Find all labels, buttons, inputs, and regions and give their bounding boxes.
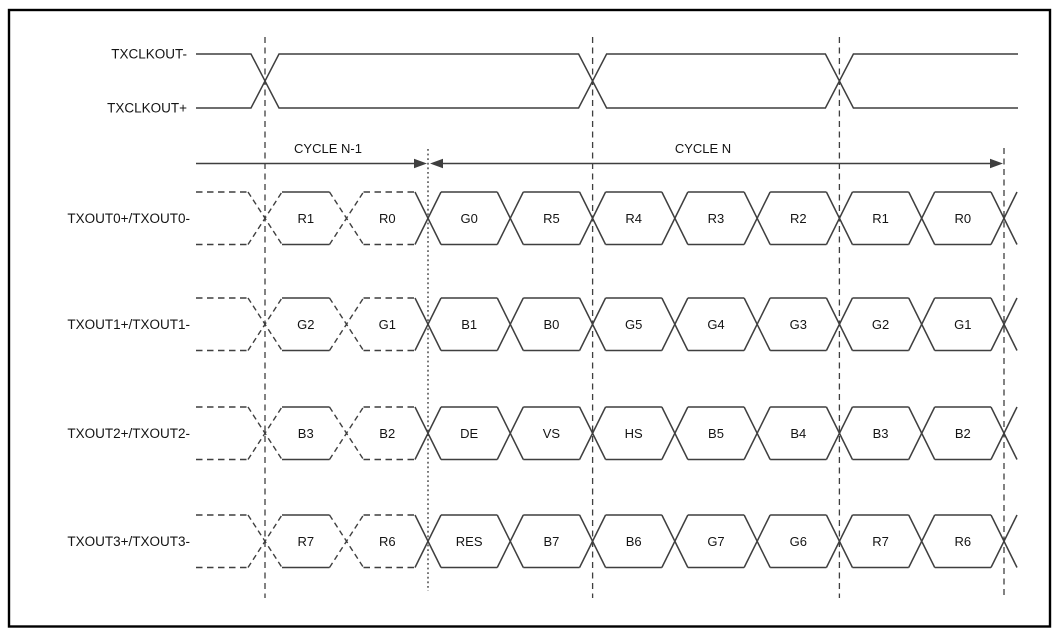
cycle-n-1-label: CYCLE N-1 <box>294 141 362 156</box>
lane-label: TXOUT3+/TXOUT3- <box>67 534 190 549</box>
bit-cell-label: G0 <box>460 211 477 226</box>
bit-cell-label: R4 <box>625 211 642 226</box>
bit-cell-label: G5 <box>625 317 642 332</box>
clock-line-minus <box>196 54 1018 108</box>
bit-cell-label: G1 <box>954 317 971 332</box>
bit-cell-label: B3 <box>298 426 314 441</box>
bit-cell-label: B0 <box>543 317 559 332</box>
timing-diagram-figure: TXCLKOUT-TXCLKOUT+CYCLE N-1CYCLE NTXOUT0… <box>0 0 1060 635</box>
bit-cell-label: R0 <box>379 211 396 226</box>
bit-cell-label: R1 <box>297 211 314 226</box>
bit-cell-label: R7 <box>297 534 314 549</box>
bit-cell-label: B7 <box>543 534 559 549</box>
clock-label-plus: TXCLKOUT+ <box>107 101 187 116</box>
bit-cell-label: B1 <box>461 317 477 332</box>
bit-cell-label: R1 <box>872 211 889 226</box>
bit-cell-label: DE <box>460 426 478 441</box>
bit-cell-label: G7 <box>707 534 724 549</box>
clock-label-minus: TXCLKOUT- <box>111 47 187 62</box>
bit-cell-label: R6 <box>379 534 396 549</box>
cycle-n-label: CYCLE N <box>675 141 731 156</box>
lane-label: TXOUT2+/TXOUT2- <box>67 426 190 441</box>
bit-cell-label: G1 <box>379 317 396 332</box>
bit-cell-label: B3 <box>873 426 889 441</box>
bit-cell-label: G3 <box>790 317 807 332</box>
bit-cell-label: G2 <box>872 317 889 332</box>
bit-cell-label: B2 <box>955 426 971 441</box>
bit-cell-label: B5 <box>708 426 724 441</box>
bit-cell-label: B2 <box>379 426 395 441</box>
bit-cell-label: G2 <box>297 317 314 332</box>
bit-cell-label: VS <box>543 426 561 441</box>
lane-label: TXOUT1+/TXOUT1- <box>67 317 190 332</box>
bit-cell-label: G6 <box>790 534 807 549</box>
bit-cell-label: R5 <box>543 211 560 226</box>
bit-cell-label: B4 <box>790 426 806 441</box>
bit-cell-label: RES <box>456 534 483 549</box>
lane-label: TXOUT0+/TXOUT0- <box>67 211 190 226</box>
bit-cell-label: B6 <box>626 534 642 549</box>
bit-cell-label: R7 <box>872 534 889 549</box>
bit-cell-label: HS <box>625 426 643 441</box>
bit-cell-label: G4 <box>707 317 724 332</box>
bit-cell-label: R3 <box>708 211 725 226</box>
bit-cell-label: R2 <box>790 211 807 226</box>
cycle-n-right-arrowhead-icon <box>990 159 1003 169</box>
clock-line-plus <box>196 54 1018 108</box>
bit-cell-label: R6 <box>955 534 972 549</box>
cycle-n-1-arrowhead-icon <box>414 159 427 169</box>
bit-cell-label: R0 <box>955 211 972 226</box>
timing-diagram-svg: TXCLKOUT-TXCLKOUT+CYCLE N-1CYCLE NTXOUT0… <box>0 0 1060 635</box>
